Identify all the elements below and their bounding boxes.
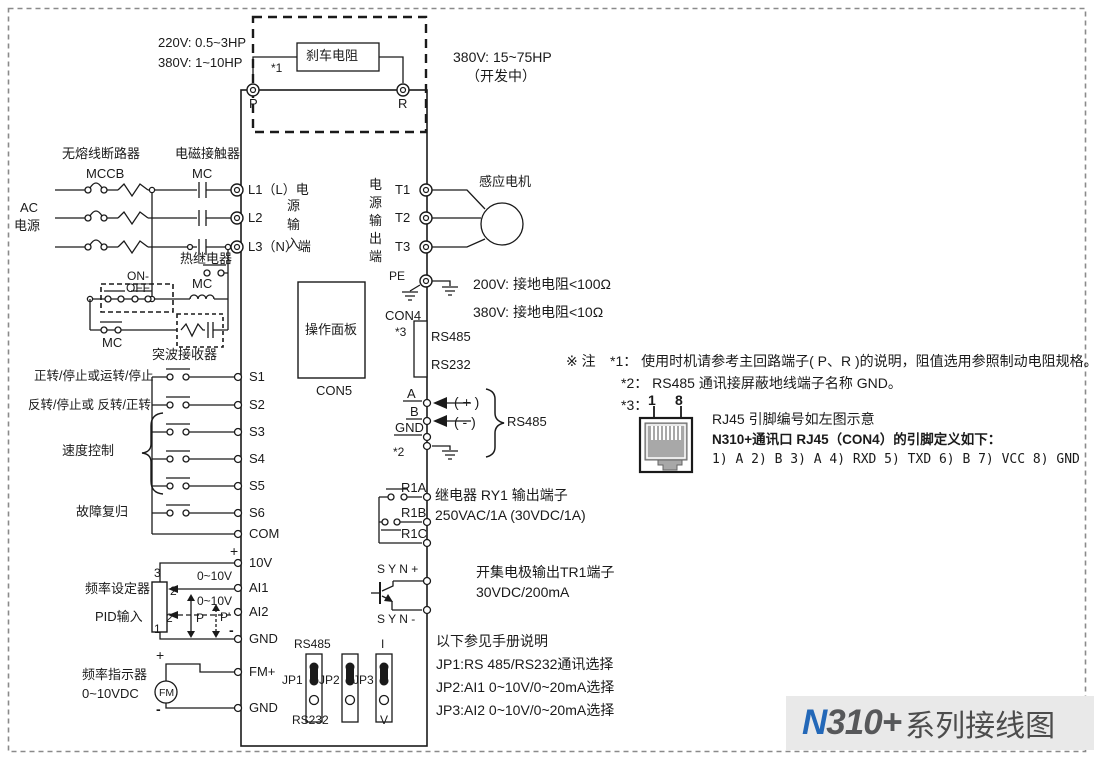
terminal-t2-label: T2 — [395, 211, 410, 226]
series-title-suffix: 系列接线图 — [905, 701, 1055, 745]
terminal-s4-label: S4 — [249, 452, 265, 467]
jp2-description: JP2:AI1 0~10V/0~20mA选择 — [436, 679, 614, 695]
jp1-top-label: RS485 — [294, 638, 331, 652]
terminal-pe-label: PE — [389, 270, 405, 284]
induction-motor-label: 感应电机 — [479, 175, 531, 190]
terminal-s3-label: S3 — [249, 425, 265, 440]
terminal-comm-gnd-label: GND — [395, 421, 424, 436]
fm-meter-label: FM — [159, 687, 174, 699]
in-development-label: （开发中） — [466, 68, 536, 84]
jp3-description: JP3:AI2 0~10V/0~20mA选择 — [436, 702, 614, 718]
jp3-label: JP3 — [353, 674, 374, 688]
series-title-n: N — [802, 703, 826, 743]
note-star3-ref: *3 — [395, 326, 406, 340]
on-off-label: ON- OFF — [126, 270, 150, 294]
jp3-top-label: I — [381, 638, 384, 652]
fm-minus-sign: - — [156, 701, 161, 717]
relay-rating-desc: 250VAC/1A (30VDC/1A) — [435, 507, 586, 523]
note-2: *2： RS485 通讯接屏蔽地线端子名称 GND。 — [621, 375, 902, 391]
ai2-range-label: 0~10V — [197, 595, 232, 609]
note-star1-ref: *1 — [271, 62, 282, 76]
rating-380v-15-75hp: 380V: 15~75HP — [453, 49, 552, 65]
terminal-r-label: R — [398, 97, 407, 112]
thermal-relay-label: 热继电器 — [180, 252, 232, 267]
jp1-label: JP1 — [282, 674, 303, 688]
fault-reset-label: 故障复归 — [76, 505, 128, 520]
speed-control-label: 速度控制 — [62, 444, 114, 459]
tr1-rating-desc: 30VDC/200mA — [476, 584, 569, 600]
rj45-caption: RJ45 引脚编号如左图示意 — [712, 411, 875, 427]
pot-pin2p-label: 2' — [166, 612, 175, 626]
rj45-jack-graphic — [640, 406, 692, 472]
mc-coil-label: MC — [192, 277, 212, 292]
terminal-r1b-label: R1B — [401, 506, 426, 521]
rj45-pin-definition-title: N310+通讯口 RJ45（CON4）的引脚定义如下： — [712, 432, 1001, 448]
pot-pin3-label: 3 — [154, 567, 161, 581]
operator-panel-label: 操作面板 — [305, 323, 357, 338]
freq-indicator-label: 频率指示器 — [82, 668, 147, 683]
terminal-s6-label: S6 — [249, 506, 265, 521]
con4-label: CON4 — [385, 309, 421, 324]
pid-input-label: PID输入 — [95, 610, 143, 625]
freq-setter-label: 频率设定器 — [85, 582, 150, 597]
digital-input-switches — [142, 369, 242, 538]
minus-sign-gnd: - — [229, 622, 234, 638]
rj45-pin8-label: 8 — [675, 392, 683, 408]
mccb-label: MCCB — [86, 167, 124, 182]
ac-label: AC — [20, 201, 38, 216]
terminal-s2-label: S2 — [249, 398, 265, 413]
jp3-bottom-label: V — [380, 714, 388, 728]
terminal-gnd-label: GND — [249, 632, 278, 647]
contactor-control-circuit — [87, 187, 230, 347]
terminal-l2-label: L2 — [248, 211, 262, 226]
note-3: *3： — [621, 397, 648, 413]
ground-resistance-200v: 200V: 接地电阻<100Ω — [473, 276, 611, 292]
tr1-output-circuit — [371, 578, 431, 614]
power-output-vertical-label: 电 源 输 出 端 — [369, 176, 382, 266]
con4-rs485-label: RS485 — [431, 330, 471, 345]
con4-rs232-label: RS232 — [431, 358, 471, 373]
rating-220v: 220V: 0.5~3HP — [158, 36, 246, 51]
relay-output-desc: 继电器 RY1 输出端子 — [435, 487, 568, 503]
ac-power-label: 电源 — [14, 219, 40, 234]
terminal-r1a-label: R1A — [401, 481, 426, 496]
pot-pin2-label: 2 — [170, 585, 177, 599]
terminal-ai1-label: AI1 — [249, 581, 269, 596]
terminal-syn-minus-label: S Y N - — [377, 613, 415, 627]
vdc-range-label: 0~10VDC — [82, 687, 139, 702]
note-1: *1： 使用时机请参考主回路端子( P、R )的说明，阻值选用参照制动电阻规格。 — [610, 353, 1094, 369]
terminal-ai2-label: AI2 — [249, 605, 269, 620]
terminal-10v-label: 10V — [249, 556, 272, 571]
plus-sign-10v: + — [230, 543, 238, 559]
brake-resistor-label: 刹车电阻 — [306, 49, 358, 64]
terminal-b-label: B — [410, 405, 419, 420]
series-title-model: 310+ — [826, 703, 901, 743]
pot-pin1-label: 1 — [154, 623, 161, 637]
terminal-syn-plus-label: S Y N + — [377, 563, 418, 577]
ground-resistance-380v: 380V: 接地电阻<10Ω — [473, 304, 603, 320]
s1-function-label: 正转/停止或运转/停止 — [34, 369, 153, 383]
rs485-group-label: RS485 — [507, 415, 547, 430]
note-mark: ※ 注 — [566, 353, 596, 369]
s2-function-label: 反转/停止或 反转/正转 — [28, 398, 151, 412]
terminal-com-label: COM — [249, 527, 279, 542]
ai1-range-label: 0~10V — [197, 570, 232, 584]
note-star2-ref: *2 — [393, 446, 404, 460]
terminal-s5-label: S5 — [249, 479, 265, 494]
terminal-r1c-label: R1C — [401, 527, 427, 542]
p-arrow-label: P — [196, 612, 204, 626]
terminal-p-label: P — [249, 97, 258, 112]
terminal-fm-label: FM+ — [249, 665, 275, 680]
rs485-minus-label: ( - ) — [454, 414, 476, 430]
jumper-blocks — [306, 654, 392, 722]
terminal-a-label: A — [407, 387, 416, 402]
terminal-s1-label: S1 — [249, 370, 265, 385]
jp2-label: JP2 — [319, 674, 340, 688]
wiring-diagram-page: 220V: 0.5~3HP 380V: 1~10HP 刹车电阻 *1 P R 3… — [0, 0, 1094, 763]
rj45-pin-assignments: 1) A 2) B 3) A 4) RXD 5) TXD 6) B 7) VCC… — [712, 453, 1080, 468]
surge-absorber-label: 突波接收器 — [152, 348, 217, 363]
manual-reference-note: 以下参见手册说明 — [436, 633, 548, 649]
rs485-plus-label: ( + ) — [454, 394, 479, 410]
power-input-lines — [55, 182, 243, 255]
jp1-description: JP1:RS 485/RS232通讯选择 — [436, 656, 613, 672]
fm-plus-sign: + — [156, 647, 164, 663]
mc-label: MC — [192, 167, 212, 182]
rj45-pin1-label: 1 — [648, 392, 656, 408]
mc-hold-label: MC — [102, 336, 122, 351]
jp1-bottom-label: RS232 — [292, 714, 329, 728]
terminal-t3-label: T3 — [395, 240, 410, 255]
terminal-gnd2-label: GND — [249, 701, 278, 716]
con5-label: CON5 — [316, 384, 352, 399]
rating-380v: 380V: 1~10HP — [158, 56, 242, 71]
title-band: N310+ 系列接线图 — [786, 696, 1094, 750]
breaker-name: 无熔线断路器 — [62, 147, 140, 162]
terminal-l3-label: L3（N）端 — [248, 240, 311, 255]
contactor-name: 电磁接触器 — [175, 147, 240, 162]
tr1-output-desc: 开集电极输出TR1端子 — [476, 564, 614, 580]
terminal-t1-label: T1 — [395, 183, 410, 198]
